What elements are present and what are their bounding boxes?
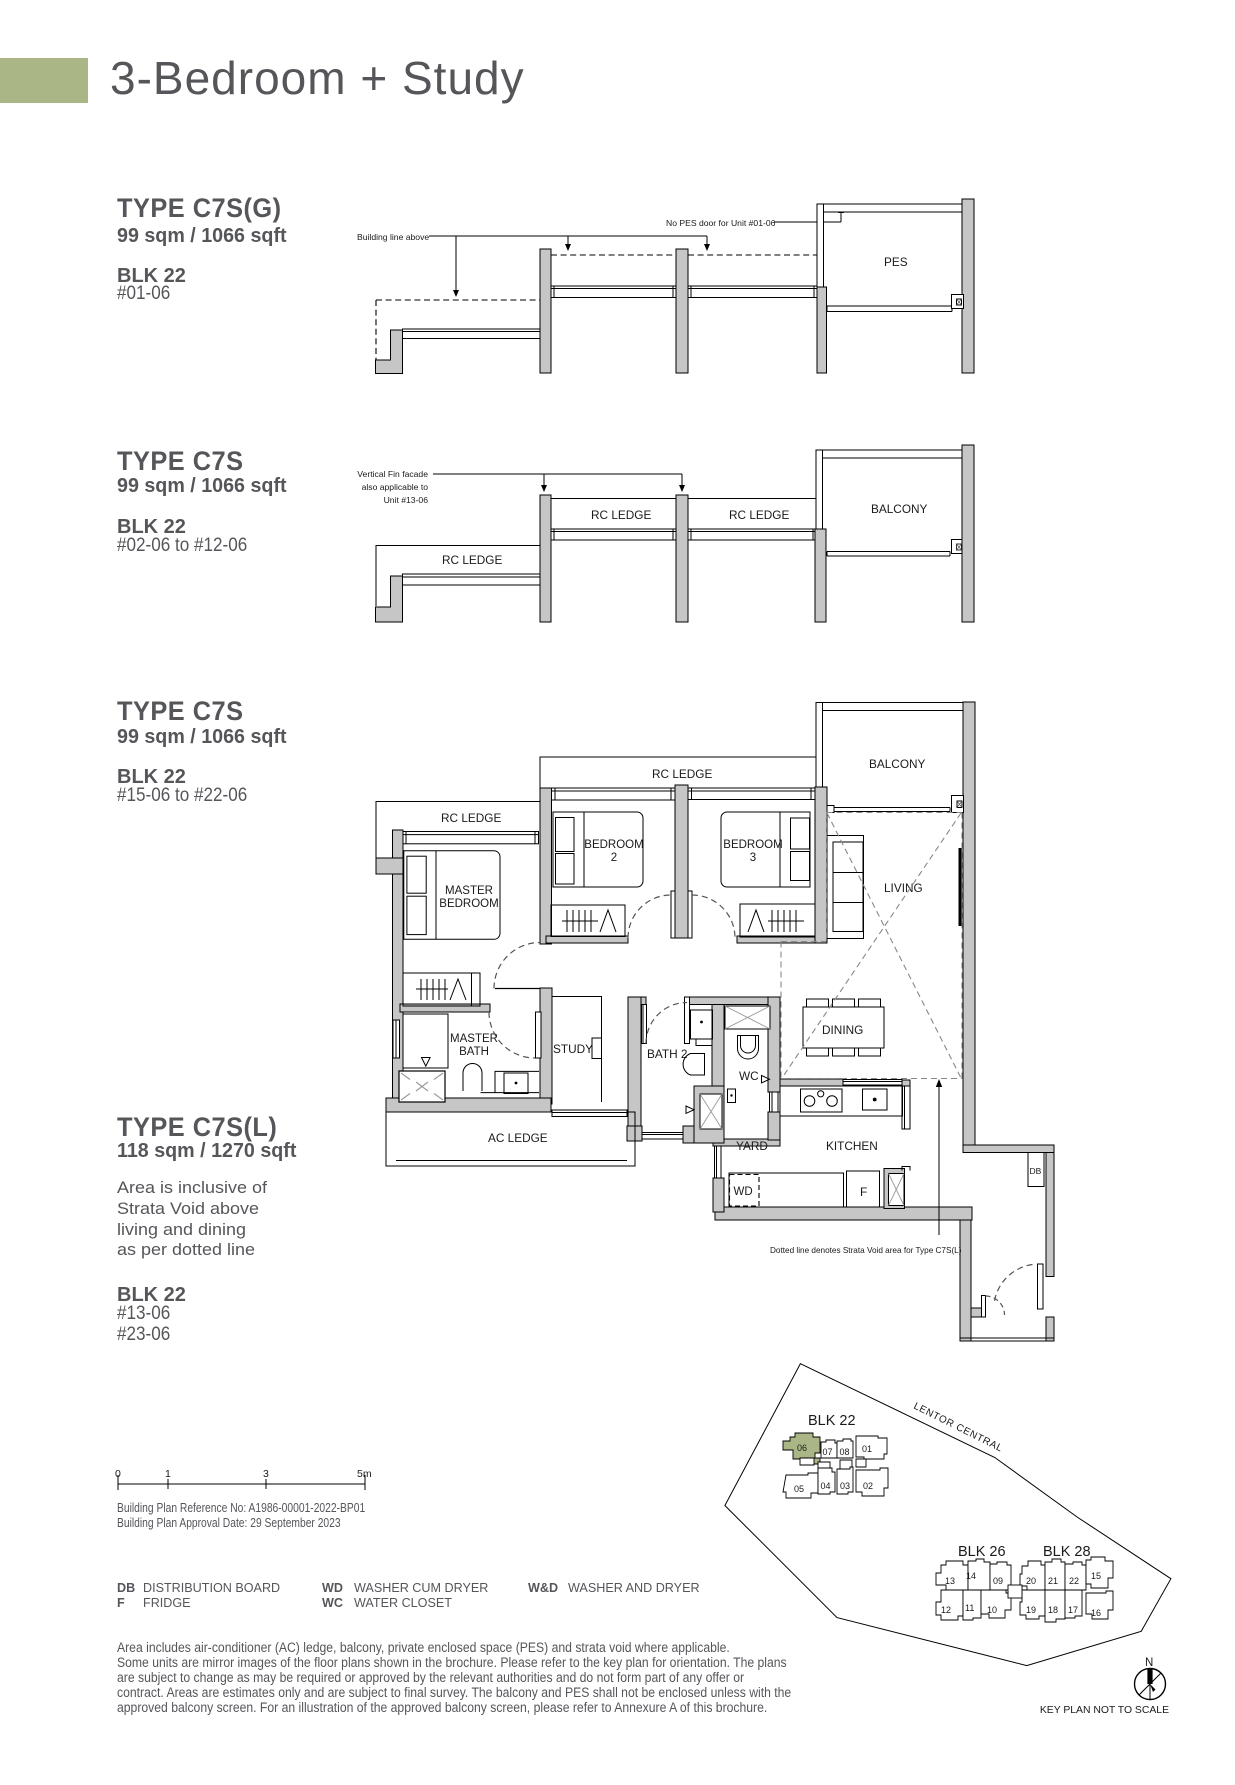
- svg-text:BATH 2: BATH 2: [647, 1047, 687, 1061]
- svg-text:01: 01: [862, 1444, 872, 1454]
- svg-text:N: N: [1145, 1657, 1153, 1669]
- svg-text:BALCONY: BALCONY: [871, 502, 928, 516]
- svg-text:13: 13: [945, 1576, 955, 1586]
- svg-text:DINING: DINING: [822, 1023, 863, 1037]
- svg-text:12: 12: [941, 1605, 951, 1615]
- svg-text:WD: WD: [734, 1186, 753, 1198]
- svg-text:2: 2: [611, 852, 617, 864]
- svg-text:AC LEDGE: AC LEDGE: [488, 1131, 548, 1145]
- svg-text:LIVING: LIVING: [884, 881, 923, 895]
- svg-text:BLK 28: BLK 28: [1043, 1544, 1091, 1560]
- svg-text:PES: PES: [884, 255, 908, 269]
- svg-text:04: 04: [821, 1481, 831, 1491]
- svg-text:20: 20: [1026, 1576, 1036, 1586]
- svg-text:3: 3: [750, 852, 756, 864]
- svg-text:19: 19: [1026, 1605, 1036, 1615]
- svg-text:RC LEDGE: RC LEDGE: [591, 508, 651, 522]
- svg-text:16: 16: [1091, 1608, 1101, 1618]
- svg-text:09: 09: [993, 1576, 1003, 1586]
- svg-text:RC LEDGE: RC LEDGE: [652, 767, 712, 781]
- svg-text:KITCHEN: KITCHEN: [826, 1139, 878, 1153]
- svg-text:Vertical Fin facade: Vertical Fin facade: [357, 469, 428, 479]
- svg-text:1: 1: [165, 1468, 171, 1480]
- svg-text:LENTOR CENTRAL: LENTOR CENTRAL: [912, 1401, 1005, 1455]
- svg-text:No PES door for Unit #01-06: No PES door for Unit #01-06: [666, 218, 776, 228]
- svg-text:BATH: BATH: [459, 1046, 489, 1058]
- svg-text:0: 0: [115, 1468, 121, 1480]
- svg-text:14: 14: [966, 1571, 976, 1581]
- svg-text:also applicable to: also applicable to: [362, 482, 429, 492]
- svg-text:BALCONY: BALCONY: [869, 757, 926, 771]
- svg-text:BEDROOM: BEDROOM: [439, 898, 498, 910]
- svg-text:3: 3: [263, 1468, 269, 1480]
- svg-text:17: 17: [1068, 1605, 1078, 1615]
- svg-text:02: 02: [863, 1481, 873, 1491]
- svg-text:5m: 5m: [357, 1468, 372, 1480]
- svg-text:03: 03: [840, 1481, 850, 1491]
- svg-text:RC LEDGE: RC LEDGE: [441, 811, 501, 825]
- svg-text:RC LEDGE: RC LEDGE: [442, 553, 502, 567]
- svg-text:Dotted line denotes Strata Voi: Dotted line denotes Strata Void area for…: [770, 1246, 962, 1255]
- svg-text:07: 07: [823, 1447, 833, 1457]
- svg-text:BEDROOM: BEDROOM: [723, 839, 782, 851]
- svg-text:Unit #13-06: Unit #13-06: [384, 495, 429, 505]
- svg-text:22: 22: [1069, 1576, 1079, 1586]
- svg-text:15: 15: [1091, 1571, 1101, 1581]
- svg-text:10: 10: [987, 1605, 997, 1615]
- svg-text:MASTER: MASTER: [450, 1033, 498, 1045]
- svg-text:STUDY: STUDY: [553, 1042, 593, 1056]
- svg-text:KEY PLAN NOT TO SCALE: KEY PLAN NOT TO SCALE: [1040, 1705, 1169, 1716]
- svg-text:YARD: YARD: [736, 1139, 768, 1153]
- svg-text:DB: DB: [1030, 1166, 1042, 1176]
- svg-text:WC: WC: [739, 1069, 759, 1083]
- svg-text:06: 06: [797, 1443, 807, 1453]
- svg-text:BLK 22: BLK 22: [808, 1413, 856, 1429]
- svg-text:18: 18: [1048, 1605, 1058, 1615]
- svg-text:F: F: [860, 1185, 867, 1199]
- svg-text:RC LEDGE: RC LEDGE: [729, 508, 789, 522]
- svg-text:08: 08: [840, 1447, 850, 1457]
- svg-text:BEDROOM: BEDROOM: [584, 839, 643, 851]
- svg-text:05: 05: [794, 1484, 804, 1494]
- svg-text:11: 11: [965, 1603, 974, 1613]
- svg-text:Building line above: Building line above: [357, 232, 429, 242]
- svg-text:BLK 26: BLK 26: [958, 1544, 1006, 1560]
- svg-text:MASTER: MASTER: [445, 885, 493, 897]
- svg-text:21: 21: [1048, 1576, 1058, 1586]
